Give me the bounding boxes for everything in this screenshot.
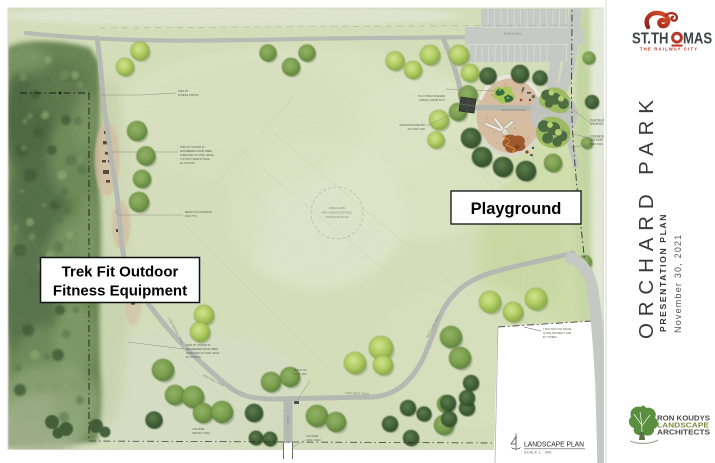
- svg-text:MAS: MAS: [683, 30, 712, 47]
- svg-text:ARCHITECTS: ARCHITECTS: [657, 428, 710, 437]
- svg-text:AND LAYBY: AND LAYBY: [590, 139, 604, 142]
- svg-text:TREK FIT STATION IN: TREK FIT STATION IN: [180, 146, 205, 149]
- svg-text:EA. STATION: EA. STATION: [180, 162, 195, 165]
- svg-text:TRAIL: TRAIL: [286, 415, 290, 424]
- svg-text:EA. STATION: EA. STATION: [186, 356, 201, 359]
- svg-text:ENGINEERED WOOD FIBRE: ENGINEERED WOOD FIBRE: [180, 150, 212, 153]
- svg-text:SWINGS JUNIOR PLAY: SWINGS JUNIOR PLAY: [419, 99, 445, 102]
- svg-text:THE RAILWAY CITY: THE RAILWAY CITY: [640, 46, 698, 51]
- svg-text:TREK FIT STATION IN: TREK FIT STATION IN: [186, 344, 211, 347]
- svg-text:BENCH ON: BENCH ON: [294, 369, 307, 372]
- svg-text:BENCH ON CONCRETE: BENCH ON CONCRETE: [185, 211, 212, 214]
- svg-text:ST.TH: ST.TH: [632, 30, 668, 47]
- svg-text:SHOWN FOR SCALE: SHOWN FOR SCALE: [325, 216, 349, 219]
- svg-text:90M x 50M SOCCER FIELD: 90M x 50M SOCCER FIELD: [322, 212, 352, 215]
- svg-text:CEDAR CHIPS PATH: CEDAR CHIPS PATH: [501, 108, 526, 112]
- svg-text:LANDSCAPE PLAN: LANDSCAPE PLAN: [524, 440, 584, 449]
- svg-text:ENGINEERED WOOD FIBRE: ENGINEERED WOOD FIBRE: [186, 348, 218, 351]
- svg-text:PRESENTATION PLAN: PRESENTATION PLAN: [658, 213, 668, 332]
- svg-text:November 30, 2021: November 30, 2021: [673, 234, 683, 333]
- svg-text:PAD (TYP): PAD (TYP): [185, 215, 197, 218]
- svg-text:TYP. BOTH SIDE OF TRAIL: TYP. BOTH SIDE OF TRAIL: [180, 158, 211, 161]
- svg-text:TREK FIT: TREK FIT: [178, 90, 189, 93]
- svg-text:OPEN LAWN: OPEN LAWN: [329, 206, 346, 210]
- svg-text:1.5M WIDE: 1.5M WIDE: [192, 428, 205, 431]
- svg-text:Fitness Equipment: Fitness Equipment: [53, 283, 187, 300]
- svg-text:ASPHALT TRAIL: ASPHALT TRAIL: [192, 432, 211, 435]
- svg-text:2.4M WIDE: 2.4M WIDE: [306, 435, 319, 438]
- svg-text:FITNESS STATION: FITNESS STATION: [178, 94, 199, 97]
- svg-text:PARK SIGN: PARK SIGN: [590, 143, 603, 146]
- svg-text:ALONG PROPERTY LINE: ALONG PROPERTY LINE: [543, 332, 571, 335]
- svg-text:SURFACING W/ CONC. EDGE: SURFACING W/ CONC. EDGE: [186, 352, 220, 355]
- svg-text:ON CONC. PAD: ON CONC. PAD: [408, 128, 426, 131]
- svg-text:CONC. WALK: CONC. WALK: [306, 439, 321, 442]
- svg-text:SCALE 1 : 300: SCALE 1 : 300: [524, 450, 552, 454]
- svg-text:1.8M CHAIN LINK FENCE: 1.8M CHAIN LINK FENCE: [543, 328, 572, 331]
- svg-text:Trek Fit Outdoor: Trek Fit Outdoor: [62, 264, 179, 281]
- svg-text:CONC. PAD: CONC. PAD: [293, 373, 306, 376]
- svg-text:ORCHARD PARK: ORCHARD PARK: [635, 100, 658, 339]
- svg-text:Playground: Playground: [471, 200, 562, 218]
- svg-text:DETENTION SHELTER: DETENTION SHELTER: [400, 124, 426, 127]
- svg-text:SHRUB MIX: SHRUB MIX: [590, 123, 604, 126]
- svg-text:PLAY STRUCTURE AND: PLAY STRUCTURE AND: [418, 95, 445, 98]
- svg-text:SURFACING W/ CONC. EDGE: SURFACING W/ CONC. EDGE: [180, 154, 214, 157]
- svg-text:BY OTHERS: BY OTHERS: [543, 336, 557, 339]
